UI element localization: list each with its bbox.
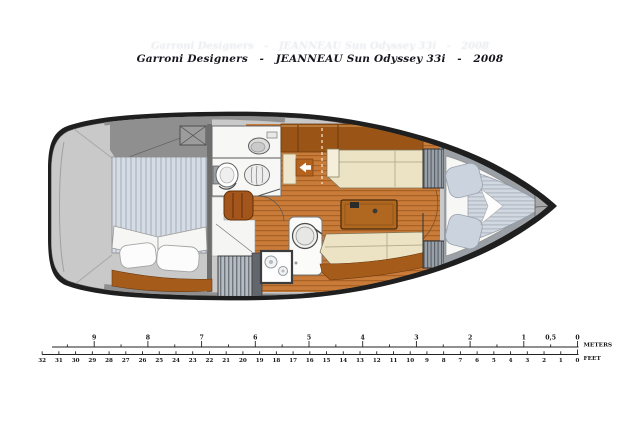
feet-unit-label: FEET	[584, 356, 602, 362]
cabin-door-left-arrow-icon	[296, 159, 313, 176]
meters-label-3: 3	[414, 335, 418, 342]
feet-label-32: 32	[38, 358, 46, 364]
meters-unit-label: METERS	[584, 343, 613, 349]
feet-label-29: 29	[88, 358, 96, 364]
feet-label-28: 28	[105, 358, 113, 364]
meters-label-6: 6	[253, 335, 257, 342]
feet-label-1: 1	[559, 358, 563, 364]
meters-label-1: 1	[522, 335, 526, 342]
two-burner-stove-icon	[261, 251, 292, 283]
feet-label-9: 9	[425, 358, 429, 364]
companionway-steps	[218, 256, 252, 298]
fwd-locker-top	[423, 149, 444, 188]
feet-label-14: 14	[339, 358, 347, 364]
feet-label-21: 21	[222, 358, 230, 364]
feet-label-26: 26	[139, 358, 147, 364]
meters-label-0,5: 0,5	[545, 335, 556, 342]
salon-cabinet-band	[281, 124, 423, 152]
aft-cabin-wall	[207, 124, 212, 292]
plan-title-ghost: Garroni Designers - JEANNEAU Sun Odyssey…	[0, 41, 640, 52]
feet-label-20: 20	[239, 358, 247, 364]
meters-label-7: 7	[199, 335, 203, 342]
feet-label-16: 16	[306, 358, 314, 364]
feet-label-11: 11	[390, 358, 398, 364]
feet-label-4: 4	[509, 358, 513, 364]
boat-interior	[51, 115, 556, 298]
feet-label-13: 13	[356, 358, 364, 364]
feet-label-8: 8	[442, 358, 446, 364]
shower-seat-icon	[245, 165, 270, 186]
feet-label-17: 17	[289, 358, 297, 364]
galley-sink-unit	[289, 217, 322, 275]
meters-label-0: 0	[575, 335, 580, 342]
feet-label-24: 24	[172, 358, 180, 364]
meters-label-9: 9	[92, 335, 96, 342]
feet-label-15: 15	[323, 358, 331, 364]
feet-label-31: 31	[55, 358, 63, 364]
boat-plan-page: Garroni Designers - JEANNEAU Sun Odyssey…	[0, 0, 640, 427]
feet-label-5: 5	[492, 358, 496, 364]
feet-label-27: 27	[122, 358, 130, 364]
deck-hatch-x-icon	[180, 126, 206, 145]
salon-table	[341, 200, 397, 229]
starboard-settee	[327, 149, 423, 188]
feet-label-7: 7	[458, 358, 462, 364]
plan-title: Garroni Designers - JEANNEAU Sun Odyssey…	[0, 53, 640, 65]
nav-seat	[224, 191, 253, 220]
aft-berth-pillow-right	[156, 245, 200, 273]
meters-label-8: 8	[146, 335, 150, 342]
feet-label-25: 25	[155, 358, 163, 364]
feet-label-3: 3	[525, 358, 529, 364]
aft-berth-pillow-left	[119, 242, 158, 269]
feet-label-23: 23	[189, 358, 197, 364]
feet-label-19: 19	[256, 358, 264, 364]
feet-label-18: 18	[272, 358, 280, 364]
feet-label-12: 12	[373, 358, 381, 364]
feet-label-10: 10	[406, 358, 414, 364]
fwd-locker-bottom	[423, 241, 444, 268]
feet-label-6: 6	[475, 358, 479, 364]
cabin-door-panel	[283, 154, 296, 184]
scale-ruler: 9876543210,50METERS323130292827262524232…	[38, 335, 612, 364]
feet-label-2: 2	[542, 358, 546, 364]
feet-label-0: 0	[576, 358, 580, 364]
meters-label-2: 2	[468, 335, 472, 342]
feet-label-22: 22	[206, 358, 214, 364]
feet-label-30: 30	[72, 358, 80, 364]
meters-label-4: 4	[361, 335, 366, 342]
meters-label-5: 5	[307, 335, 311, 342]
